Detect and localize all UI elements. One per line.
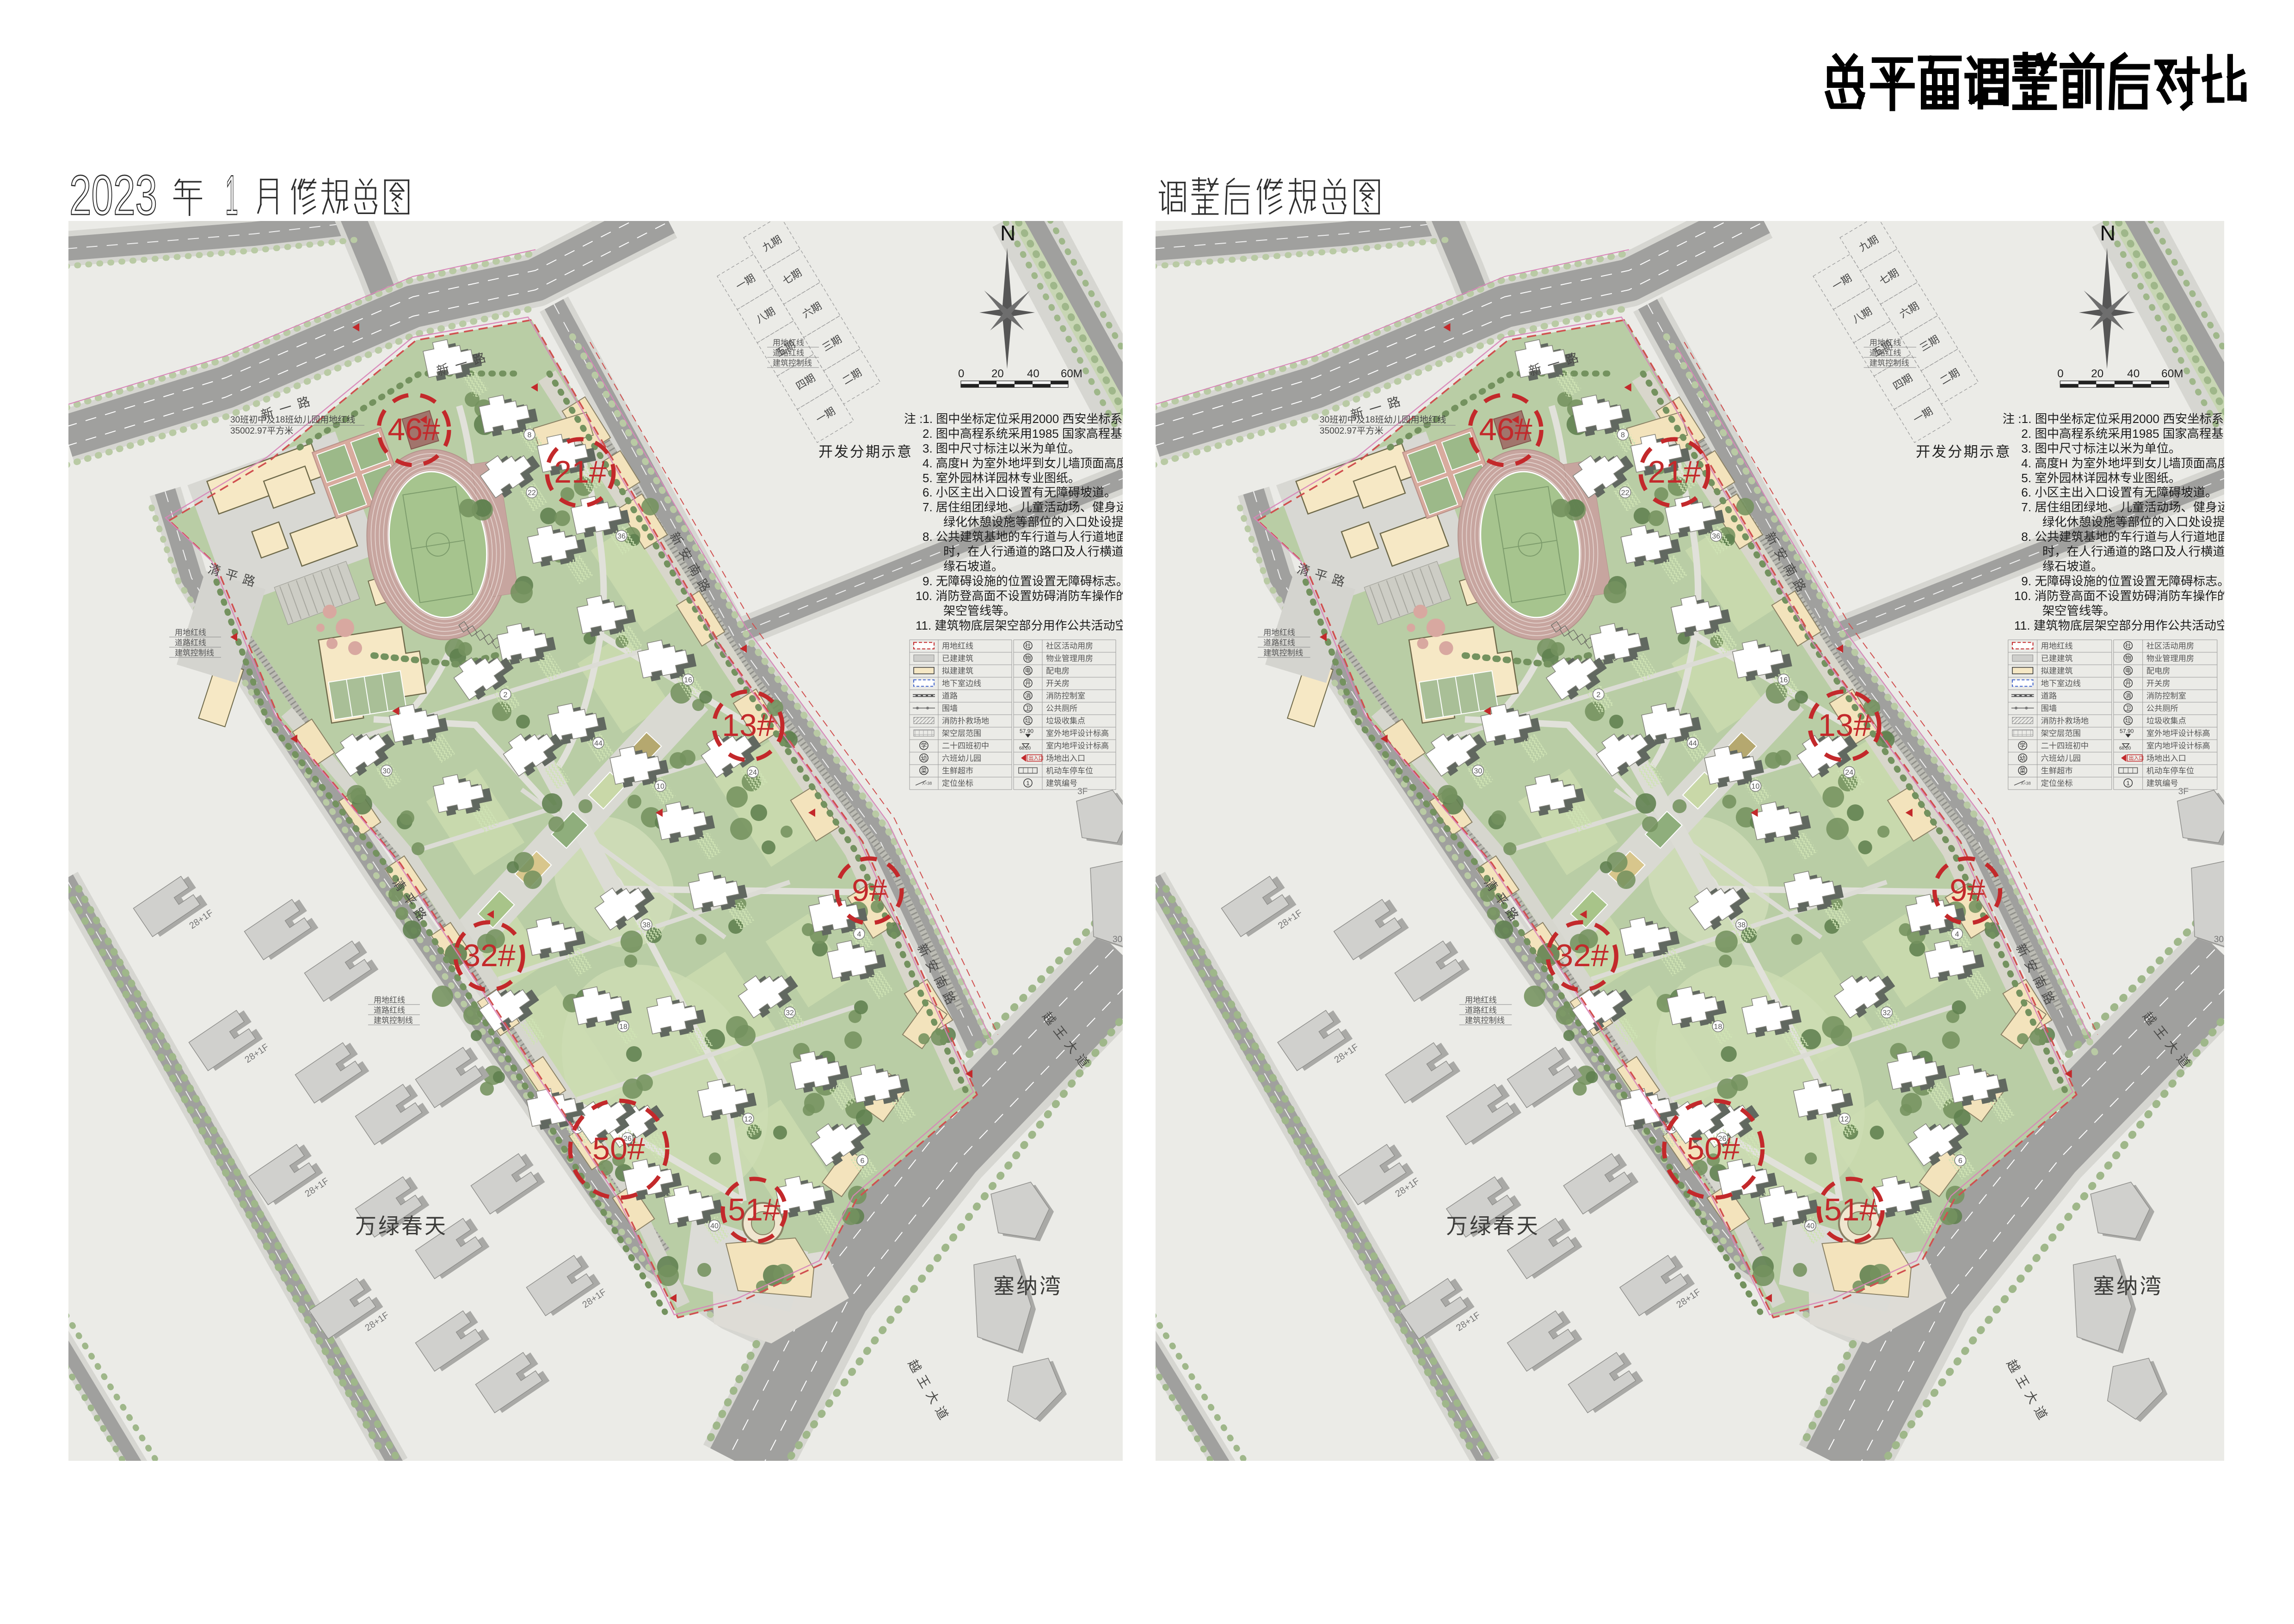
svg-text:1: 1 bbox=[225, 164, 238, 227]
svg-text:2023: 2023 bbox=[69, 164, 157, 227]
